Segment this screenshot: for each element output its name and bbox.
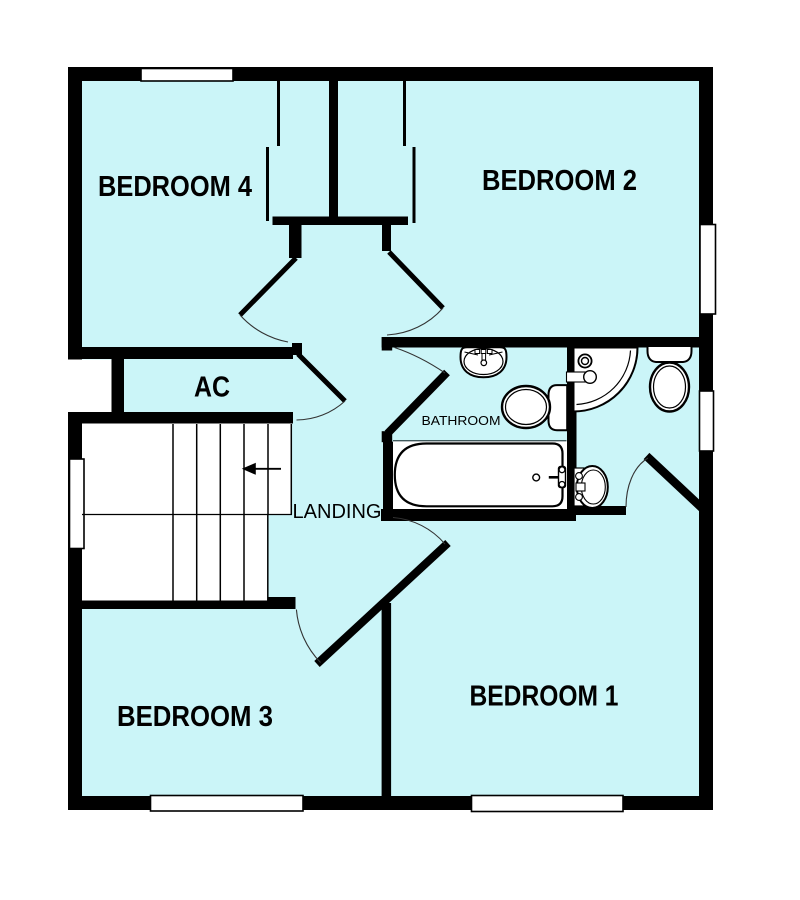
svg-text:BEDROOM 3: BEDROOM 3 [117,701,273,733]
svg-text:BEDROOM 4: BEDROOM 4 [98,171,252,203]
svg-text:AC: AC [194,372,230,404]
svg-text:BEDROOM 1: BEDROOM 1 [470,681,619,713]
svg-text:LANDING: LANDING [293,500,382,523]
svg-text:BEDROOM 2: BEDROOM 2 [482,165,637,197]
svg-text:BATHROOM: BATHROOM [422,413,501,428]
